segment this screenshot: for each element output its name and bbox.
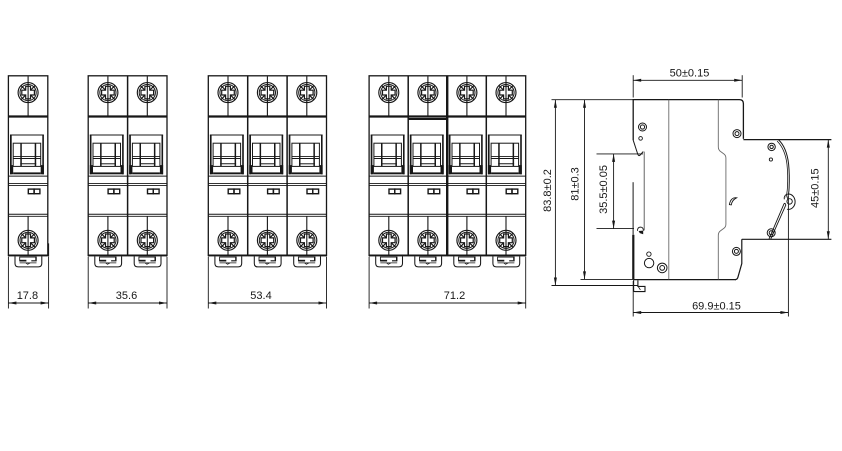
svg-text:83.8±0.2: 83.8±0.2 xyxy=(542,169,554,212)
svg-text:35.5±0.05: 35.5±0.05 xyxy=(598,165,610,214)
svg-text:35.6: 35.6 xyxy=(116,290,137,302)
svg-text:81±0.3: 81±0.3 xyxy=(570,167,582,201)
svg-text:69.9±0.15: 69.9±0.15 xyxy=(692,301,741,313)
svg-text:50±0.15: 50±0.15 xyxy=(670,68,710,80)
svg-text:17.8: 17.8 xyxy=(17,290,38,302)
svg-text:71.2: 71.2 xyxy=(444,290,465,302)
svg-text:53.4: 53.4 xyxy=(250,290,271,302)
svg-text:45±0.15: 45±0.15 xyxy=(810,168,822,208)
